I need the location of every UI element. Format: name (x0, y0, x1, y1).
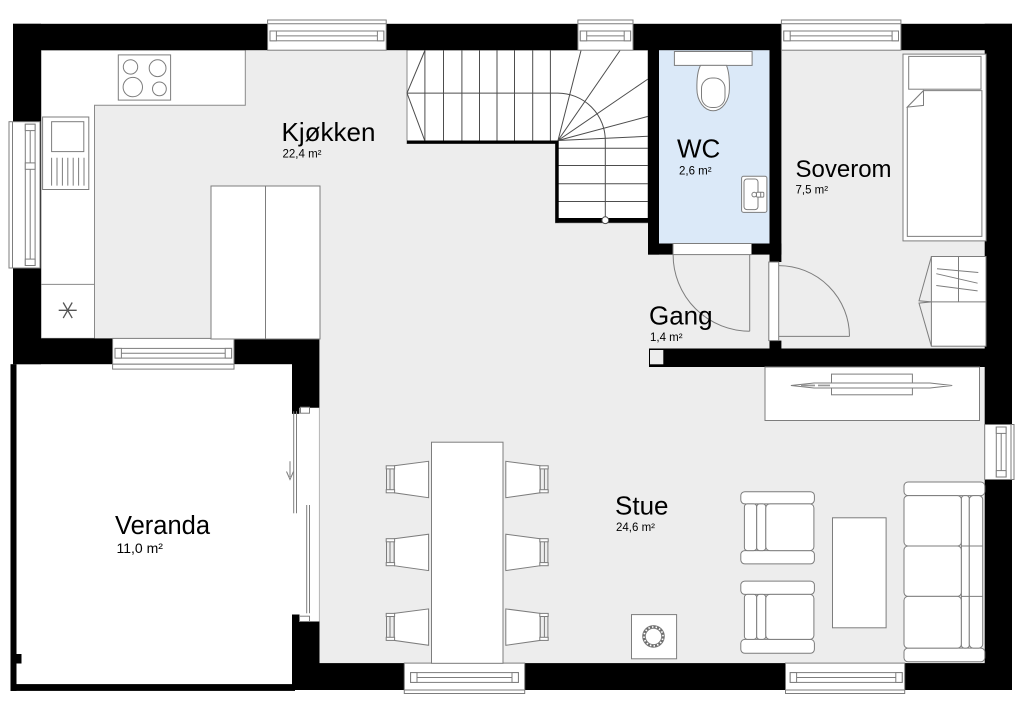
svg-text:7,5 m²: 7,5 m² (796, 185, 829, 197)
svg-text:2,6 m²: 2,6 m² (679, 166, 712, 178)
svg-text:WC: WC (677, 133, 720, 163)
svg-text:Kjøkken: Kjøkken (282, 117, 376, 147)
svg-text:Soverom: Soverom (796, 156, 892, 183)
svg-text:Veranda: Veranda (115, 512, 211, 540)
svg-text:Stue: Stue (615, 491, 669, 521)
svg-text:24,6 m²: 24,6 m² (616, 522, 655, 534)
svg-text:Gang: Gang (649, 301, 713, 331)
svg-text:1,4 m²: 1,4 m² (650, 332, 683, 344)
svg-text:11,0 m²: 11,0 m² (117, 540, 164, 556)
svg-text:22,4 m²: 22,4 m² (283, 148, 322, 160)
